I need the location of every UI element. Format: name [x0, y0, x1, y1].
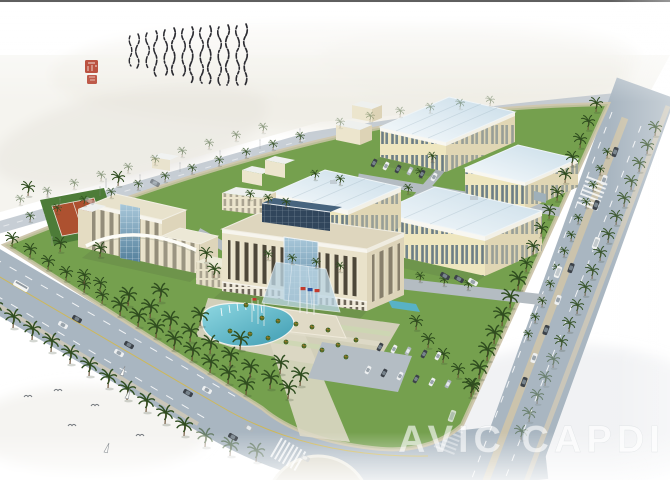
watermark-text: AVIC CAPDI: [398, 419, 665, 461]
rendering-canvas: AVIC CAPDI: [0, 0, 670, 480]
